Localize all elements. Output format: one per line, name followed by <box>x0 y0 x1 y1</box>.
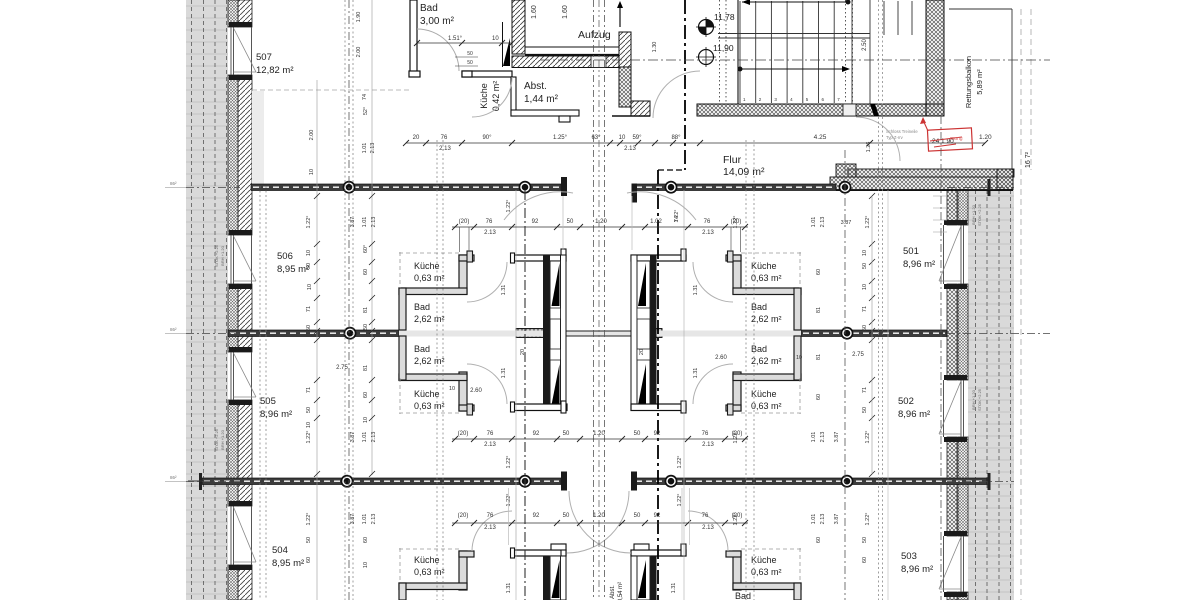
svg-text:5,89 m²: 5,89 m² <box>975 69 984 95</box>
svg-text:(20): (20) <box>458 513 469 519</box>
svg-text:8,96 m²: 8,96 m² <box>901 564 933 575</box>
svg-text:86²: 86² <box>170 475 177 480</box>
svg-text:STOK +2.25: STOK +2.25 <box>214 428 219 451</box>
svg-text:1.20: 1.20 <box>979 134 992 141</box>
svg-text:8,95 m²: 8,95 m² <box>272 558 304 569</box>
svg-text:76: 76 <box>702 513 709 519</box>
svg-text:501: 501 <box>903 246 919 257</box>
svg-text:50: 50 <box>567 219 574 225</box>
svg-text:1.22°: 1.22° <box>733 431 739 444</box>
svg-text:2.13: 2.13 <box>702 525 714 531</box>
svg-text:BRH +1.20: BRH +1.20 <box>220 429 225 449</box>
svg-text:2.60: 2.60 <box>470 388 482 394</box>
svg-text:2.13: 2.13 <box>371 217 377 228</box>
svg-text:81: 81 <box>816 354 822 360</box>
svg-text:0,63 m²: 0,63 m² <box>751 401 782 411</box>
svg-text:1.22°: 1.22° <box>306 513 312 526</box>
svg-text:50: 50 <box>467 51 473 57</box>
svg-text:50: 50 <box>862 325 868 331</box>
svg-text:10: 10 <box>306 422 312 428</box>
svg-text:1.01: 1.01 <box>362 143 368 154</box>
svg-text:2,62 m²: 2,62 m² <box>414 356 445 366</box>
svg-text:BRH +1.20: BRH +1.20 <box>220 245 225 265</box>
svg-text:74: 74 <box>362 94 368 100</box>
svg-text:0,63 m²: 0,63 m² <box>751 567 782 577</box>
svg-text:90°: 90° <box>482 135 492 141</box>
svg-text:2.13: 2.13 <box>439 146 451 152</box>
svg-text:3.87: 3.87 <box>841 220 852 226</box>
svg-text:50: 50 <box>306 407 312 413</box>
svg-text:2.00: 2.00 <box>356 47 362 58</box>
svg-text:2.75: 2.75 <box>852 352 864 358</box>
svg-text:1.31: 1.31 <box>501 285 507 296</box>
svg-text:1.01: 1.01 <box>811 217 817 228</box>
svg-text:88°: 88° <box>671 135 681 141</box>
svg-text:4.25: 4.25 <box>814 134 827 141</box>
svg-text:76: 76 <box>704 219 711 225</box>
svg-text:71: 71 <box>306 387 312 393</box>
svg-text:1.31: 1.31 <box>506 583 512 594</box>
svg-text:76: 76 <box>487 513 494 519</box>
svg-text:81: 81 <box>816 307 822 313</box>
svg-text:8,96 m²: 8,96 m² <box>260 409 292 420</box>
svg-text:92: 92 <box>654 513 661 519</box>
svg-text:1.01: 1.01 <box>811 432 817 443</box>
svg-text:1.22°: 1.22° <box>865 431 871 444</box>
svg-text:1.22°: 1.22° <box>506 494 512 507</box>
svg-text:1.01: 1.01 <box>811 514 817 525</box>
svg-text:2.13: 2.13 <box>371 514 377 525</box>
svg-text:1.90: 1.90 <box>356 12 362 23</box>
svg-text:81: 81 <box>363 307 369 313</box>
svg-text:60: 60 <box>306 557 312 563</box>
svg-text:71: 71 <box>306 306 312 312</box>
svg-text:50: 50 <box>563 513 570 519</box>
svg-text:10: 10 <box>449 386 455 392</box>
svg-text:50: 50 <box>634 431 641 437</box>
svg-text:10: 10 <box>363 562 369 568</box>
svg-text:2.13: 2.13 <box>820 432 826 443</box>
svg-text:1,44 m²: 1,44 m² <box>524 94 559 105</box>
svg-text:1.22°: 1.22° <box>506 200 512 213</box>
svg-text:Küche: Küche <box>479 83 489 109</box>
svg-text:STOK +2.25: STOK +2.25 <box>977 388 982 411</box>
svg-text:92: 92 <box>654 431 661 437</box>
svg-text:1.51°: 1.51° <box>448 36 463 42</box>
svg-text:1.01: 1.01 <box>362 217 368 228</box>
svg-text:2.00: 2.00 <box>309 130 315 141</box>
svg-text:Küche: Küche <box>414 389 440 399</box>
svg-text:Bad: Bad <box>414 344 430 354</box>
svg-text:Küche: Küche <box>751 555 777 565</box>
svg-text:76: 76 <box>487 431 494 437</box>
svg-text:81: 81 <box>363 365 369 371</box>
svg-text:(20): (20) <box>458 431 469 437</box>
svg-text:50: 50 <box>563 431 570 437</box>
svg-text:STOK +2.25: STOK +2.25 <box>214 244 219 267</box>
svg-text:11,78: 11,78 <box>714 12 735 22</box>
svg-text:50: 50 <box>306 537 312 543</box>
svg-text:76: 76 <box>702 431 709 437</box>
svg-text:Bad: Bad <box>751 344 767 354</box>
svg-text:0,54 m²: 0,54 m² <box>618 582 624 600</box>
svg-text:1.22°: 1.22° <box>865 216 871 229</box>
svg-text:1.20: 1.20 <box>593 431 605 437</box>
svg-text:2.13: 2.13 <box>484 525 496 531</box>
svg-text:86²: 86² <box>170 181 177 186</box>
svg-text:11,90: 11,90 <box>713 43 734 53</box>
svg-text:1.22°: 1.22° <box>677 456 683 469</box>
svg-text:71: 71 <box>862 387 868 393</box>
svg-text:Abst.: Abst. <box>610 585 616 599</box>
svg-text:0,63 m²: 0,63 m² <box>414 401 445 411</box>
svg-text:76: 76 <box>441 135 448 141</box>
svg-text:50: 50 <box>306 263 312 269</box>
svg-text:50: 50 <box>862 407 868 413</box>
svg-text:Küche: Küche <box>751 389 777 399</box>
svg-text:50: 50 <box>862 537 868 543</box>
svg-text:10: 10 <box>862 284 868 290</box>
svg-text:0,63 m²: 0,63 m² <box>751 273 782 283</box>
svg-text:20: 20 <box>639 349 645 355</box>
svg-text:Abst.: Abst. <box>524 81 547 92</box>
svg-text:20: 20 <box>413 135 420 141</box>
svg-text:2.13: 2.13 <box>702 442 714 448</box>
svg-text:(20): (20) <box>459 219 470 225</box>
svg-text:60: 60 <box>363 269 369 275</box>
svg-text:Küche: Küche <box>414 261 440 271</box>
svg-text:10: 10 <box>492 36 499 42</box>
svg-text:Bad: Bad <box>735 591 751 600</box>
svg-text:1.01: 1.01 <box>362 514 368 525</box>
svg-text:1.30: 1.30 <box>652 42 658 53</box>
svg-text:Küche: Küche <box>414 555 440 565</box>
svg-text:3.87: 3.87 <box>350 514 356 525</box>
svg-text:502: 502 <box>898 396 914 407</box>
svg-text:1.22°: 1.22° <box>306 431 312 444</box>
svg-text:1.22°: 1.22° <box>733 513 739 526</box>
svg-text:1.60: 1.60 <box>562 5 569 19</box>
svg-text:506: 506 <box>277 251 293 262</box>
svg-text:10: 10 <box>862 250 868 256</box>
svg-text:10: 10 <box>619 135 626 141</box>
svg-text:1.31: 1.31 <box>671 583 677 594</box>
svg-text:2.13: 2.13 <box>820 514 826 525</box>
svg-text:1.20: 1.20 <box>595 219 607 225</box>
svg-text:2.13: 2.13 <box>624 146 636 152</box>
svg-text:60: 60 <box>816 269 822 275</box>
svg-text:60: 60 <box>816 537 822 543</box>
svg-text:10: 10 <box>309 169 315 175</box>
svg-text:8,96 m²: 8,96 m² <box>903 259 935 270</box>
svg-text:2.75: 2.75 <box>336 365 348 371</box>
svg-text:1.02: 1.02 <box>650 219 662 225</box>
svg-text:Küche: Küche <box>751 261 777 271</box>
svg-text:Rettungsbalkon: Rettungsbalkon <box>964 56 973 108</box>
svg-text:2.50: 2.50 <box>862 39 868 51</box>
svg-text:92: 92 <box>532 219 539 225</box>
svg-text:1.22°: 1.22° <box>306 216 312 229</box>
svg-text:3.87: 3.87 <box>834 514 840 525</box>
svg-text:1.01: 1.01 <box>362 432 368 443</box>
svg-text:52°: 52° <box>363 107 369 115</box>
svg-text:Schloss Treineile: Schloss Treineile <box>886 129 918 134</box>
svg-text:Bad: Bad <box>414 302 430 312</box>
svg-text:507: 507 <box>256 52 272 63</box>
svg-text:92: 92 <box>533 431 540 437</box>
svg-text:71: 71 <box>862 306 868 312</box>
svg-text:2.13: 2.13 <box>371 432 377 443</box>
svg-text:1.26: 1.26 <box>866 142 872 153</box>
svg-text:BRH +1.20: BRH +1.20 <box>971 204 976 224</box>
svg-text:Flur: Flur <box>723 154 742 166</box>
svg-text:10: 10 <box>363 417 369 423</box>
svg-text:50: 50 <box>467 60 473 66</box>
svg-text:60: 60 <box>363 392 369 398</box>
svg-text:Aufzug: Aufzug <box>578 29 611 41</box>
svg-text:1.60: 1.60 <box>531 5 538 19</box>
svg-text:1.22°: 1.22° <box>733 216 739 229</box>
svg-text:86²: 86² <box>170 327 177 332</box>
svg-text:1.31: 1.31 <box>693 285 699 296</box>
svg-text:3.87: 3.87 <box>350 217 356 228</box>
svg-text:50: 50 <box>363 324 369 330</box>
svg-text:60°: 60° <box>363 245 369 253</box>
svg-text:12,82 m²: 12,82 m² <box>256 65 294 76</box>
svg-text:60: 60 <box>816 394 822 400</box>
svg-text:8,96 m²: 8,96 m² <box>898 409 930 420</box>
svg-text:60: 60 <box>363 537 369 543</box>
svg-text:1.31: 1.31 <box>693 368 699 379</box>
svg-text:2.13: 2.13 <box>820 217 826 228</box>
svg-text:2,62 m²: 2,62 m² <box>751 314 782 324</box>
svg-text:1.22°: 1.22° <box>506 456 512 469</box>
svg-text:76: 76 <box>486 219 493 225</box>
svg-text:504: 504 <box>272 545 288 556</box>
svg-text:2.13: 2.13 <box>370 143 376 154</box>
svg-text:STOK +2.25: STOK +2.25 <box>977 203 982 226</box>
svg-text:63°: 63° <box>591 135 601 141</box>
svg-text:mung: mung <box>950 136 963 142</box>
svg-text:2,62 m²: 2,62 m² <box>414 314 445 324</box>
svg-text:50: 50 <box>634 513 641 519</box>
svg-text:Bad: Bad <box>420 3 438 14</box>
svg-text:1.20: 1.20 <box>593 513 605 519</box>
svg-text:0,63 m²: 0,63 m² <box>414 567 445 577</box>
svg-text:1.22°: 1.22° <box>865 513 871 526</box>
svg-text:50: 50 <box>306 325 312 331</box>
svg-text:8,95 m²: 8,95 m² <box>277 264 309 275</box>
svg-text:10: 10 <box>307 284 313 290</box>
svg-text:60: 60 <box>862 557 868 563</box>
svg-text:2.13: 2.13 <box>702 230 714 236</box>
svg-text:10: 10 <box>796 355 802 361</box>
svg-text:Bad: Bad <box>751 302 767 312</box>
svg-text:2.13: 2.13 <box>484 230 496 236</box>
svg-text:10: 10 <box>306 250 312 256</box>
svg-text:20: 20 <box>520 349 526 355</box>
svg-text:1.22°: 1.22° <box>674 210 680 223</box>
svg-text:503: 503 <box>901 551 917 562</box>
svg-text:3,00 m²: 3,00 m² <box>420 16 455 27</box>
svg-text:3.87: 3.87 <box>834 432 840 443</box>
svg-text:59°: 59° <box>632 135 642 141</box>
svg-text:3.87: 3.87 <box>350 432 356 443</box>
svg-text:0,63 m²: 0,63 m² <box>414 273 445 283</box>
svg-text:1.25°: 1.25° <box>553 135 568 141</box>
svg-text:14,09 m²: 14,09 m² <box>723 166 765 178</box>
svg-text:2,62 m²: 2,62 m² <box>751 356 782 366</box>
svg-text:1.31: 1.31 <box>501 368 507 379</box>
svg-text:50: 50 <box>862 263 868 269</box>
svg-text:2.60: 2.60 <box>715 355 727 361</box>
svg-text:BRH +1.20: BRH +1.20 <box>971 389 976 409</box>
svg-text:2.13: 2.13 <box>484 442 496 448</box>
svg-text:505: 505 <box>260 396 276 407</box>
svg-text:92: 92 <box>533 513 540 519</box>
